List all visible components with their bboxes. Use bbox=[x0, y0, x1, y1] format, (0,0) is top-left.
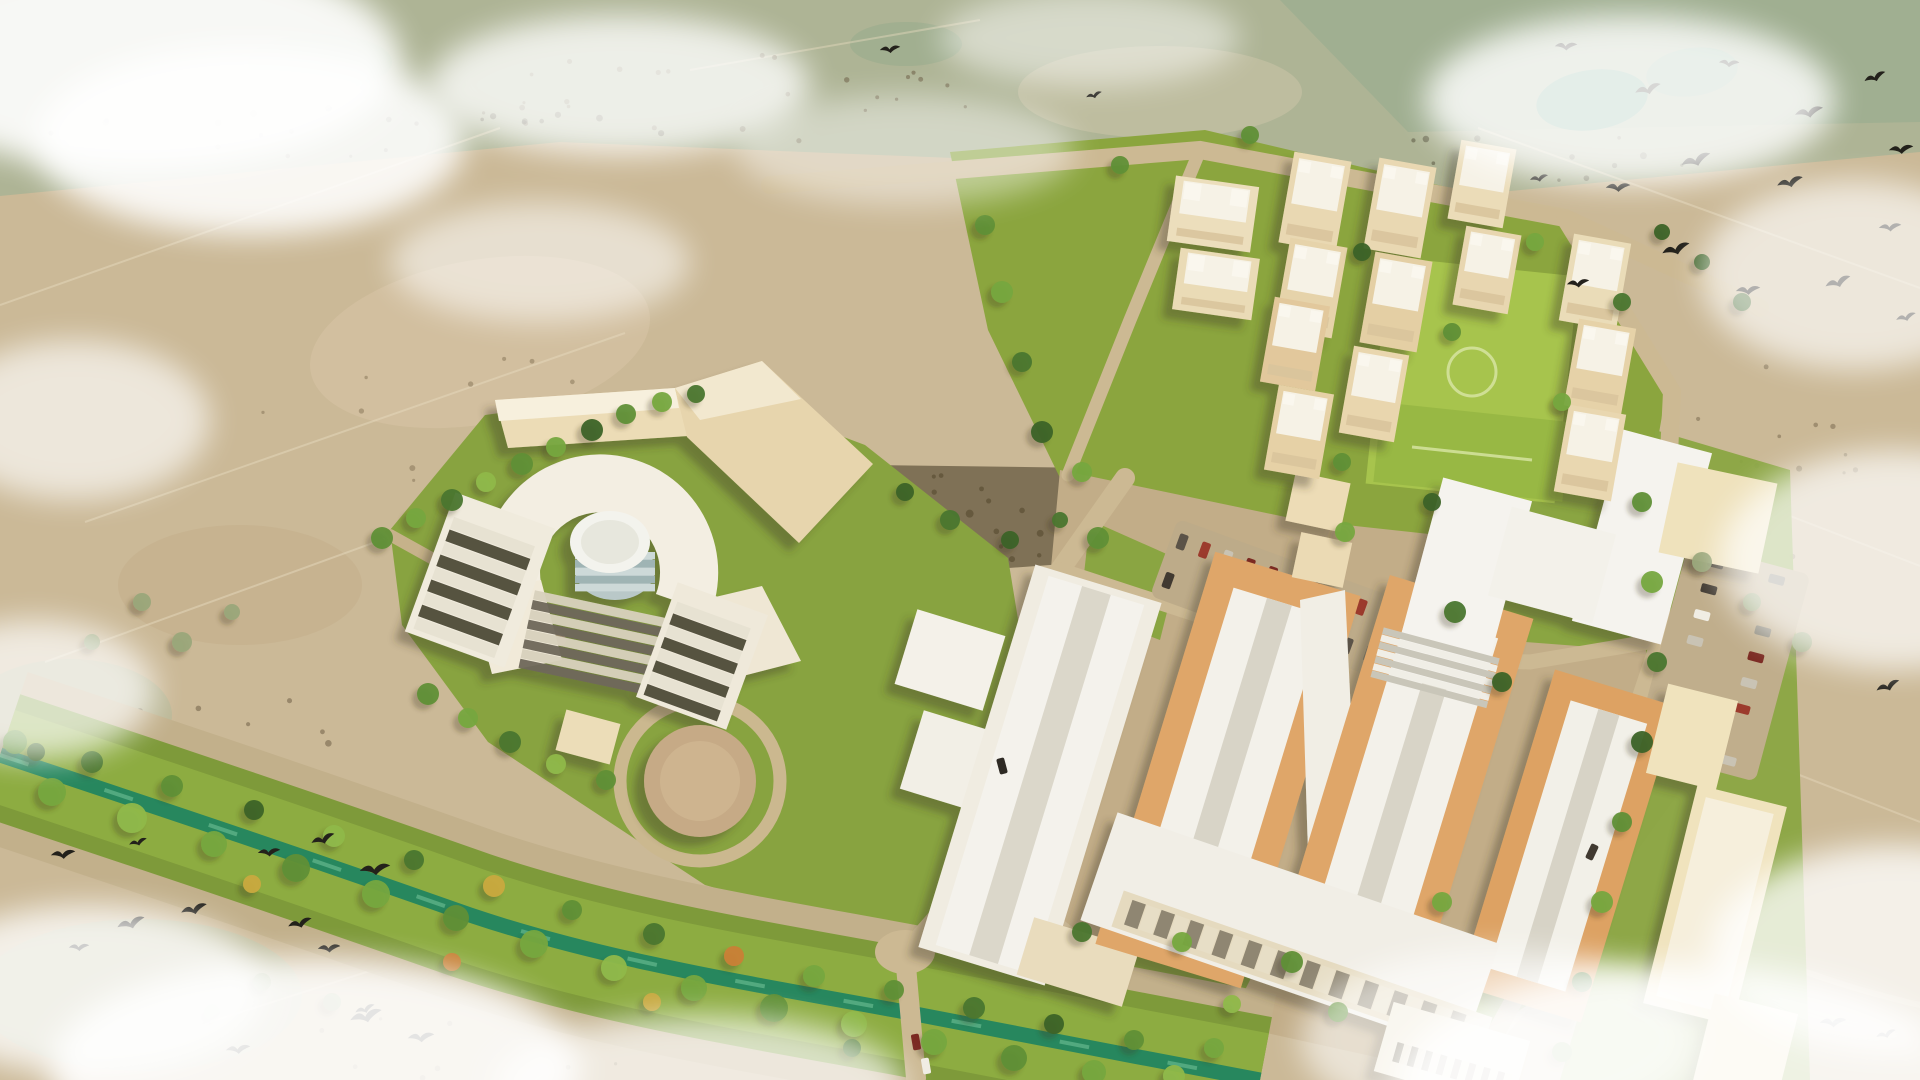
shrub-speckle bbox=[932, 474, 936, 478]
shape bbox=[581, 520, 639, 564]
shrub-speckle bbox=[1764, 364, 1769, 369]
tree bbox=[1443, 323, 1461, 341]
tree bbox=[1526, 233, 1544, 251]
shrub-speckle bbox=[979, 486, 984, 491]
shrub-speckle bbox=[1696, 417, 1700, 421]
shrub-speckle bbox=[939, 473, 944, 478]
tree bbox=[1281, 951, 1303, 973]
tree bbox=[282, 854, 310, 882]
tree bbox=[511, 453, 533, 475]
shrub-speckle bbox=[530, 359, 535, 364]
tree bbox=[201, 831, 227, 857]
tree bbox=[643, 923, 665, 945]
tree bbox=[1492, 672, 1512, 692]
tree bbox=[1001, 531, 1019, 549]
shrub-speckle bbox=[1009, 556, 1015, 562]
tree bbox=[760, 994, 788, 1022]
shrub-speckle bbox=[906, 75, 910, 79]
tree bbox=[562, 900, 582, 920]
tree bbox=[371, 527, 393, 549]
shrub-speckle bbox=[1813, 423, 1818, 428]
tree bbox=[940, 510, 960, 530]
tree bbox=[1632, 492, 1652, 512]
tree bbox=[172, 632, 192, 652]
tree bbox=[38, 778, 66, 806]
scene-svg bbox=[0, 0, 1920, 1080]
tree bbox=[681, 975, 707, 1001]
tree bbox=[652, 392, 672, 412]
tree bbox=[1641, 571, 1663, 593]
tree bbox=[244, 800, 264, 820]
shrub-speckle bbox=[320, 729, 325, 734]
tree bbox=[963, 997, 985, 1019]
tree bbox=[1654, 224, 1670, 240]
shrub-speckle bbox=[1037, 530, 1044, 537]
tree bbox=[443, 905, 469, 931]
tree bbox=[81, 751, 103, 773]
tree bbox=[581, 419, 603, 441]
tree bbox=[243, 875, 261, 893]
tree bbox=[417, 683, 439, 705]
tree bbox=[1031, 421, 1053, 443]
tree bbox=[1553, 393, 1571, 411]
shrub-speckle bbox=[945, 83, 949, 87]
tree bbox=[546, 754, 566, 774]
cloud bbox=[1425, 15, 1835, 185]
shrub-speckle bbox=[359, 408, 364, 413]
tree bbox=[841, 1011, 867, 1037]
tree bbox=[884, 980, 904, 1000]
residential-tower bbox=[1172, 248, 1260, 321]
tree bbox=[161, 775, 183, 797]
shrub-speckle bbox=[911, 71, 915, 75]
tree bbox=[1692, 552, 1712, 572]
tree bbox=[133, 593, 151, 611]
tree bbox=[1444, 601, 1466, 623]
tree bbox=[1204, 1038, 1224, 1058]
tree bbox=[601, 955, 627, 981]
shrub-speckle bbox=[364, 376, 367, 379]
shrub-speckle bbox=[932, 489, 937, 494]
tree bbox=[975, 215, 995, 235]
tree bbox=[1631, 731, 1653, 753]
shrub-speckle bbox=[986, 498, 991, 503]
tree bbox=[406, 508, 426, 528]
tree bbox=[1613, 293, 1631, 311]
tree bbox=[896, 483, 914, 501]
tree bbox=[687, 385, 705, 403]
tree bbox=[1591, 891, 1613, 913]
tree bbox=[724, 946, 744, 966]
residential-tower bbox=[1167, 175, 1259, 252]
tree bbox=[1044, 1014, 1064, 1034]
shrub-speckle bbox=[1432, 161, 1436, 165]
tree bbox=[443, 953, 461, 971]
shape bbox=[660, 741, 740, 821]
tree bbox=[404, 850, 424, 870]
tree bbox=[546, 437, 566, 457]
shrub-speckle bbox=[468, 381, 473, 386]
shrub-speckle bbox=[246, 722, 250, 726]
shrub-speckle bbox=[261, 411, 264, 414]
tree bbox=[596, 770, 616, 790]
cloud bbox=[735, 95, 1075, 205]
shrub-speckle bbox=[1019, 508, 1025, 514]
cloud bbox=[390, 202, 690, 322]
shrub-speckle bbox=[409, 465, 415, 471]
shrub-speckle bbox=[966, 510, 974, 518]
shape bbox=[118, 525, 362, 645]
shrub-speckle bbox=[502, 357, 506, 361]
tree bbox=[1001, 1045, 1027, 1071]
tree bbox=[1072, 922, 1092, 942]
tree bbox=[1333, 453, 1351, 471]
tree bbox=[921, 1029, 947, 1055]
tree bbox=[1111, 156, 1129, 174]
tree bbox=[991, 281, 1013, 303]
aerial-masterplan-render bbox=[0, 0, 1920, 1080]
shrub-speckle bbox=[1830, 424, 1835, 429]
shrub-speckle bbox=[844, 77, 849, 82]
tree bbox=[1432, 892, 1452, 912]
tree bbox=[643, 993, 661, 1011]
tree bbox=[458, 708, 478, 728]
shrub-speckle bbox=[287, 698, 292, 703]
tree bbox=[1223, 995, 1241, 1013]
tree bbox=[520, 930, 548, 958]
tree bbox=[1072, 462, 1092, 482]
tree bbox=[1052, 512, 1068, 528]
tree bbox=[1087, 527, 1109, 549]
tree bbox=[1241, 126, 1259, 144]
tree bbox=[1124, 1030, 1144, 1050]
shrub-speckle bbox=[325, 740, 332, 747]
tree bbox=[476, 472, 496, 492]
tree bbox=[224, 604, 240, 620]
shrub-speckle bbox=[994, 528, 1000, 534]
tree bbox=[441, 489, 463, 511]
shrub-speckle bbox=[1777, 435, 1781, 439]
tree bbox=[1612, 812, 1632, 832]
tree bbox=[803, 965, 825, 987]
shrub-speckle bbox=[1037, 553, 1041, 557]
tree bbox=[362, 880, 390, 908]
shrub-speckle bbox=[412, 479, 415, 482]
shrub-speckle bbox=[570, 380, 575, 385]
tree bbox=[1335, 522, 1355, 542]
shrub-speckle bbox=[1423, 136, 1429, 142]
tree bbox=[616, 404, 636, 424]
tree bbox=[1647, 652, 1667, 672]
tree bbox=[1353, 243, 1371, 261]
shrub-speckle bbox=[918, 77, 923, 82]
tree bbox=[1172, 932, 1192, 952]
tree bbox=[117, 803, 147, 833]
shrub-speckle bbox=[196, 706, 202, 712]
tree bbox=[499, 731, 521, 753]
tree bbox=[483, 875, 505, 897]
tree bbox=[1012, 352, 1032, 372]
tree bbox=[1423, 493, 1441, 511]
shrub-speckle bbox=[1411, 138, 1415, 142]
